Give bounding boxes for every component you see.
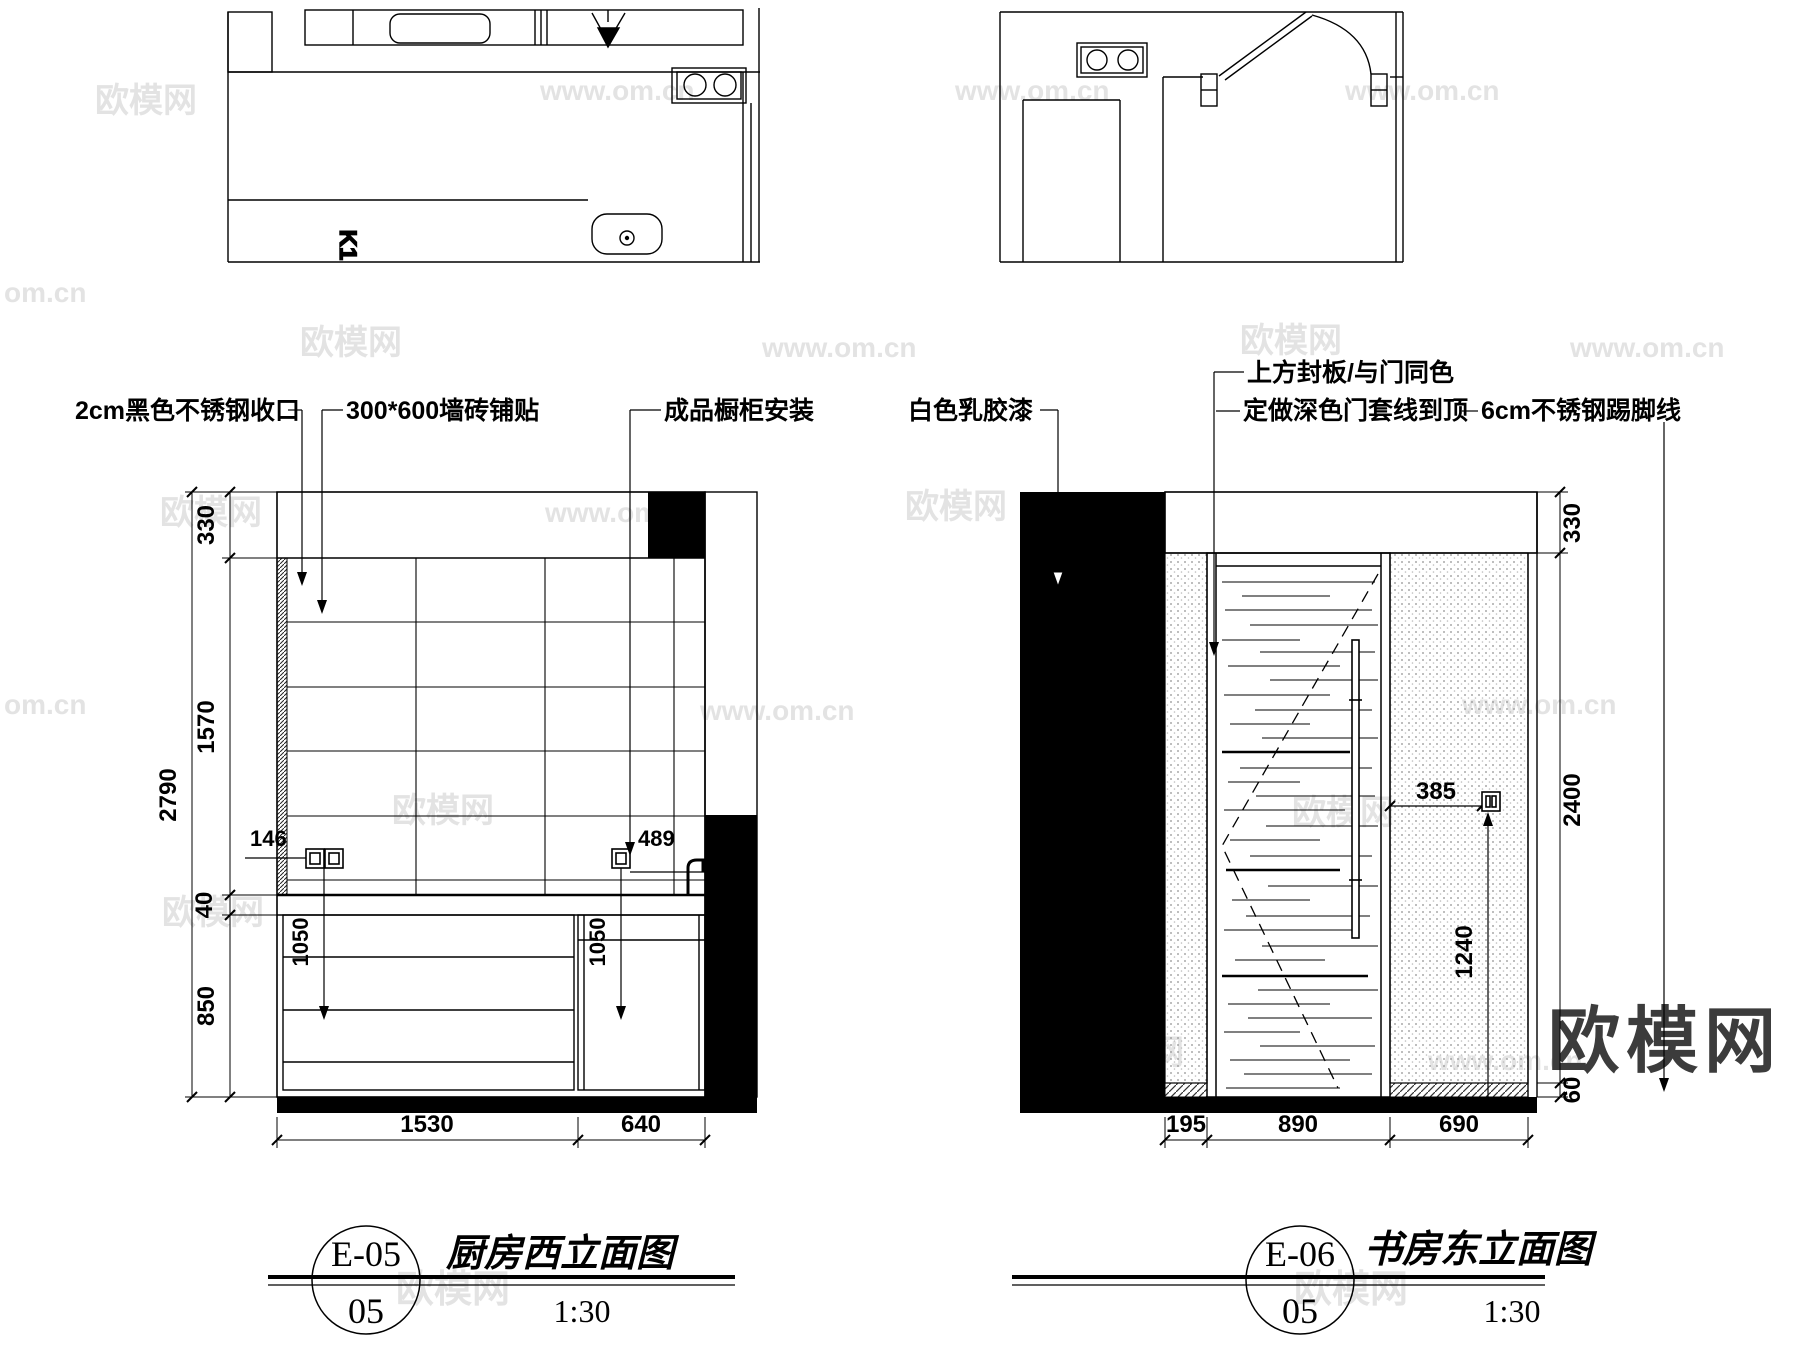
watermark: 欧模网 <box>1240 322 1342 360</box>
annotation-stainless: 2cm黑色不锈钢收口 <box>75 396 300 425</box>
double-socket-icon <box>306 849 343 868</box>
watermark: om.cn <box>4 277 86 308</box>
annotations-left: 2cm黑色不锈钢收口 300*600墙砖铺贴 成品橱柜安装 <box>75 396 814 856</box>
dim-640: 640 <box>621 1111 661 1138</box>
dim-146: 146 <box>250 826 287 851</box>
painted-wall-left <box>1165 553 1207 1083</box>
base-cabinets <box>283 915 705 1090</box>
dim-690: 690 <box>1439 1111 1479 1138</box>
dim-40: 40 <box>191 892 218 919</box>
watermark: 欧模网 <box>300 324 402 362</box>
watermark: 欧模网 <box>905 488 1007 526</box>
dim-1050-right: 1050 <box>585 918 610 967</box>
floor-strip <box>277 1097 757 1113</box>
annotation-doorcasing: 定做深色门套线到顶 <box>1243 396 1468 425</box>
watermark-logo: 欧模网 <box>1548 1002 1782 1082</box>
view-scale: 1:30 <box>554 1293 611 1329</box>
watermark: www.om.cn <box>954 75 1110 106</box>
dim-1530: 1530 <box>400 1111 453 1138</box>
skirting <box>1390 1083 1528 1097</box>
watermark: www.om.cn <box>539 75 695 106</box>
watermark: www.om.cn <box>1344 75 1500 106</box>
ceiling-band <box>1165 492 1537 553</box>
watermark: 欧模网 <box>95 82 197 120</box>
wall-section-block <box>648 492 705 558</box>
switch-icon <box>1482 792 1500 811</box>
cad-sheet: 欧模网 www.om.cn www.om.cn www.om.cn om.cn … <box>0 0 1800 1347</box>
plan-room-label: K1 <box>334 230 361 261</box>
dim-195: 195 <box>1166 1111 1206 1138</box>
dim-330: 330 <box>1559 503 1586 543</box>
dim-850: 850 <box>193 986 220 1026</box>
dim-1570: 1570 <box>193 700 220 753</box>
sheet-number: 05 <box>1282 1291 1318 1331</box>
watermark: www.om.cn <box>1569 332 1725 363</box>
plan-study <box>1000 12 1403 262</box>
dim-2400: 2400 <box>1559 773 1586 826</box>
annotation-cabinet: 成品橱柜安装 <box>664 396 814 425</box>
elevation-marker-icon <box>592 10 625 47</box>
door-swing-icon <box>1219 12 1371 80</box>
cooktop-plan-icon <box>1077 43 1147 77</box>
watermark: www.om.cn <box>699 695 855 726</box>
plan-kitchen: K1 <box>228 8 760 262</box>
sink-plan-icon <box>592 214 662 254</box>
view-title: 书房东立面图 <box>1364 1229 1598 1271</box>
skirting <box>1165 1083 1207 1097</box>
wall-section-block <box>705 815 757 1097</box>
elevation-study-east: 385 1240 330 2400 60 <box>908 358 1681 1334</box>
watermark: www.om.cn <box>761 332 917 363</box>
dim-385: 385 <box>1416 778 1456 805</box>
watermark: om.cn <box>4 689 86 720</box>
view-scale: 1:30 <box>1484 1293 1541 1329</box>
annotation-panel: 上方封板/与门同色 <box>1247 358 1454 387</box>
watermark: 欧模网 <box>392 792 494 830</box>
dim-60: 60 <box>1559 1077 1586 1104</box>
annotation-paint: 白色乳胶漆 <box>908 396 1033 425</box>
dim-1050-left: 1050 <box>288 918 313 967</box>
detail-code: E-05 <box>331 1234 401 1274</box>
dim-2790: 2790 <box>155 768 182 821</box>
faucet-icon <box>688 860 703 895</box>
elevation-kitchen-west: 146 489 1050 1050 <box>75 396 814 1334</box>
wall-section-bar <box>1020 492 1165 1097</box>
door-handle-icon <box>1349 640 1362 938</box>
drawing-svg: 欧模网 www.om.cn www.om.cn www.om.cn om.cn … <box>0 0 1800 1347</box>
single-socket-icon <box>612 849 630 868</box>
dim-489: 489 <box>638 826 675 851</box>
dim-1240: 1240 <box>1451 925 1478 978</box>
annotation-tile: 300*600墙砖铺贴 <box>346 396 539 425</box>
view-title: 厨房西立面图 <box>446 1233 680 1275</box>
dim-330: 330 <box>193 505 220 545</box>
sheet-number: 05 <box>348 1291 384 1331</box>
detail-code: E-06 <box>1265 1234 1335 1274</box>
painted-wall-right <box>1390 553 1528 1083</box>
annotation-skirting: 6cm不锈钢踢脚线 <box>1481 396 1681 425</box>
dim-890: 890 <box>1278 1111 1318 1138</box>
